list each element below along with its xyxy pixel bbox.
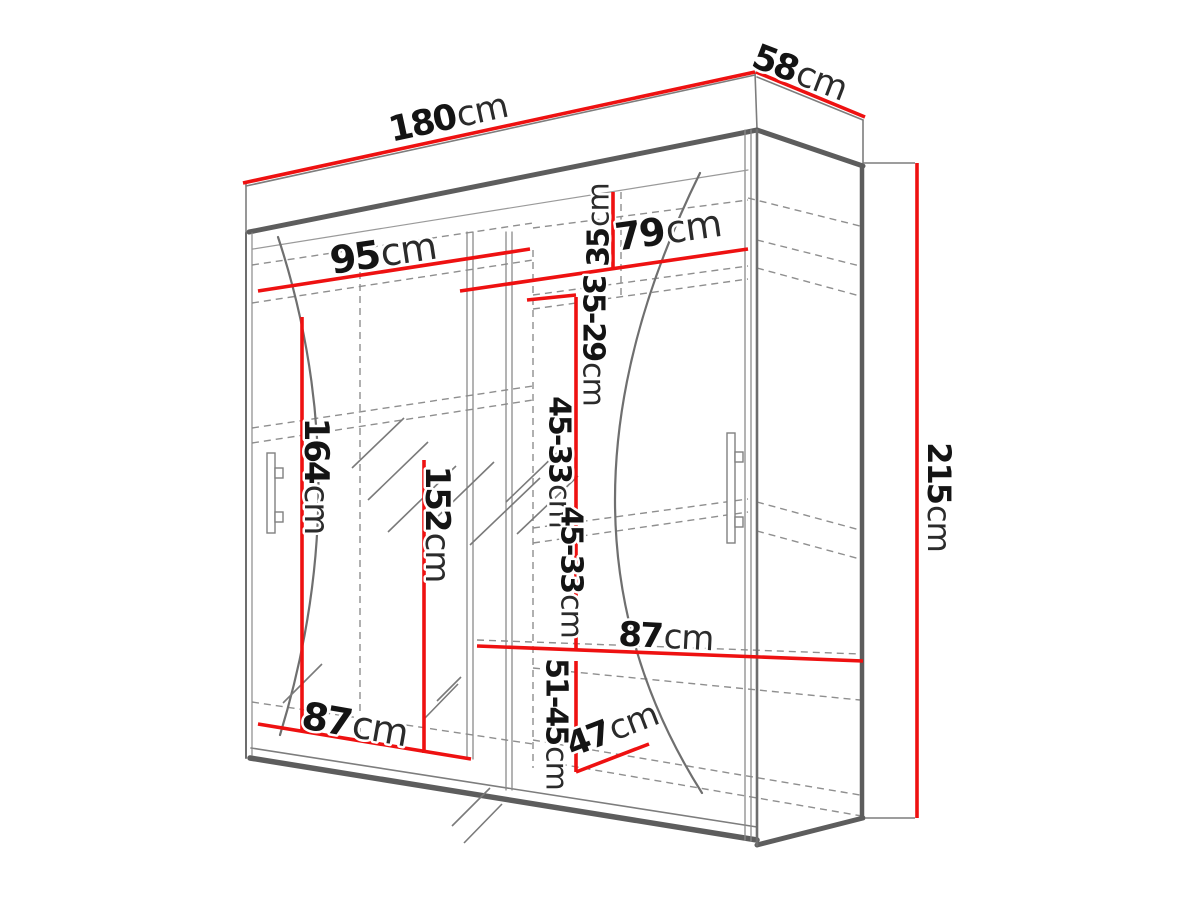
door-handles bbox=[267, 433, 743, 543]
dim-label-left-interior-height: 164cm bbox=[296, 418, 336, 535]
right-handle-mount bbox=[735, 452, 743, 462]
dashed-shelf-line bbox=[757, 502, 860, 530]
front-bottom-edge bbox=[250, 758, 757, 840]
dashed-shelf-line bbox=[533, 279, 748, 309]
dashed-shelf-line bbox=[757, 531, 860, 559]
right-handle-mount bbox=[735, 517, 743, 527]
dim-label-height: 215cm bbox=[920, 442, 958, 552]
dimension-extension-lines bbox=[863, 163, 915, 818]
side-panel-bottom-edge bbox=[757, 818, 863, 845]
dim-label-depth: 58cm bbox=[747, 37, 853, 109]
dashed-shelf-line bbox=[748, 198, 860, 226]
dim-label-top-shelf-drop: 35cm bbox=[582, 183, 617, 266]
right-door-handle bbox=[727, 433, 735, 543]
dim-label-hanging-height: 152cm bbox=[417, 466, 457, 583]
left-handle-mount bbox=[275, 468, 283, 478]
left-door-handle bbox=[267, 453, 275, 533]
plinth-top-line bbox=[251, 748, 757, 827]
dimension-labels: 180cm 58cm 215cm 95cm 79cm 35cm 35-29cm … bbox=[296, 37, 958, 790]
dim-label-bottom-shelf-width: 87cm bbox=[299, 693, 412, 755]
left-handle-mount bbox=[275, 512, 283, 522]
dashed-shelf-line bbox=[533, 266, 748, 295]
dashed-shelf-line bbox=[548, 762, 862, 816]
hatch-mark bbox=[464, 804, 502, 843]
hatch-mark bbox=[425, 684, 458, 718]
dim-tick bbox=[527, 295, 576, 300]
dim-label-right-section-width: 79cm bbox=[612, 201, 724, 259]
dim-label-shelf-gap-lower: 45-33cm bbox=[554, 506, 589, 638]
dashed-shelf-line bbox=[757, 268, 860, 296]
diagram-drawing: 180cm 58cm 215cm 95cm 79cm 35cm 35-29cm … bbox=[0, 0, 1200, 900]
dashed-shelf-line bbox=[757, 240, 860, 266]
side-panel-top-edge bbox=[757, 130, 863, 166]
dim-label-bottom-shelf-gap: 51-45cm bbox=[539, 658, 574, 790]
dim-label-left-section-width: 95cm bbox=[327, 224, 439, 283]
wardrobe-dimension-diagram: 180cm 58cm 215cm 95cm 79cm 35cm 35-29cm … bbox=[0, 0, 1200, 900]
hatch-mark bbox=[470, 478, 540, 545]
top-panel-corner-edge bbox=[755, 72, 757, 129]
dim-label-width: 180cm bbox=[385, 86, 511, 151]
dim-label-shelf-gap-upper: 35-29cm bbox=[576, 274, 611, 406]
hatch-mark bbox=[437, 677, 461, 701]
dim-label-right-shelf-width: 87cm bbox=[617, 614, 714, 659]
dashed-shelf-line bbox=[533, 668, 860, 700]
